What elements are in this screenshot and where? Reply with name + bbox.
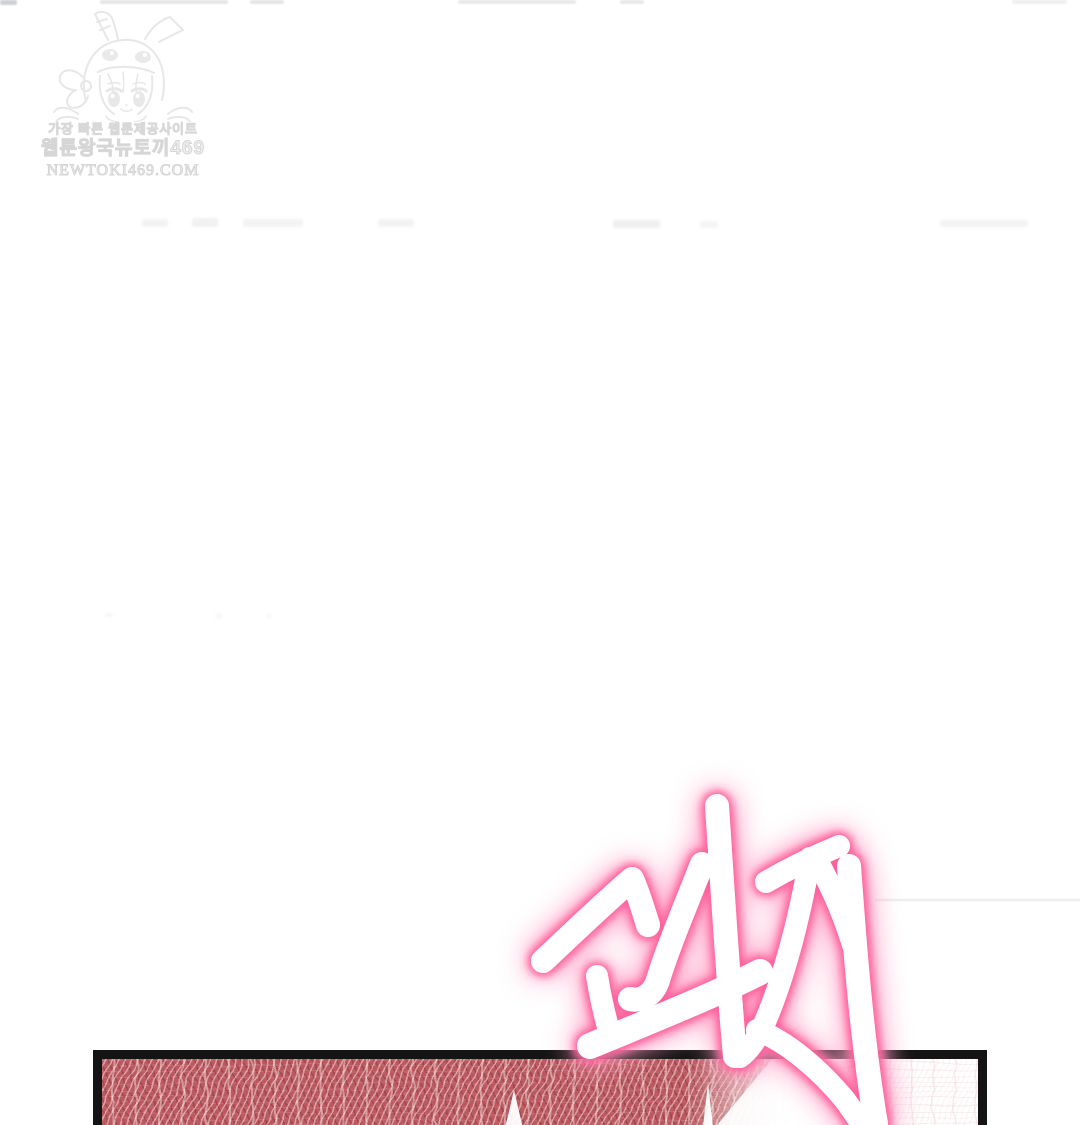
artifact-smudge (250, 0, 284, 4)
watermark-tagline: 가장 빠른 웹툰제공사이트 (45, 123, 201, 137)
artifact-smudge (0, 0, 17, 5)
artifact-smudge (265, 614, 273, 618)
artifact-smudge (378, 219, 414, 227)
watermark-site-name: 웹툰왕국뉴토끼469 (38, 137, 208, 161)
webtoon-page: 가장 빠른 웹툰제공사이트 웹툰왕국뉴토끼469 NEWTOKI469.COM … (0, 0, 1080, 1125)
artifact-smudge (620, 0, 644, 4)
comic-panel (93, 1050, 987, 1125)
artifact-smudge (700, 221, 718, 228)
artifact-smudge (243, 219, 303, 227)
faint-sketch-line (875, 899, 1080, 901)
artifact-smudge (100, 0, 228, 4)
artifact-smudge (192, 218, 218, 227)
artifact-smudge (940, 220, 1028, 227)
bunny-hood-girl-illustration (48, 10, 198, 122)
artifact-smudge (613, 220, 660, 228)
watermark-site-url: NEWTOKI469.COM (38, 161, 208, 181)
artifact-smudge (458, 0, 576, 4)
site-watermark: 가장 빠른 웹툰제공사이트 웹툰왕국뉴토끼469 NEWTOKI469.COM (38, 10, 208, 181)
artifact-smudge (1012, 0, 1067, 4)
artifact-smudge (142, 219, 168, 227)
fabric-texture (102, 1059, 832, 1125)
panel-content (102, 1059, 978, 1125)
artifact-smudge (105, 613, 113, 617)
artifact-smudge (215, 614, 223, 618)
